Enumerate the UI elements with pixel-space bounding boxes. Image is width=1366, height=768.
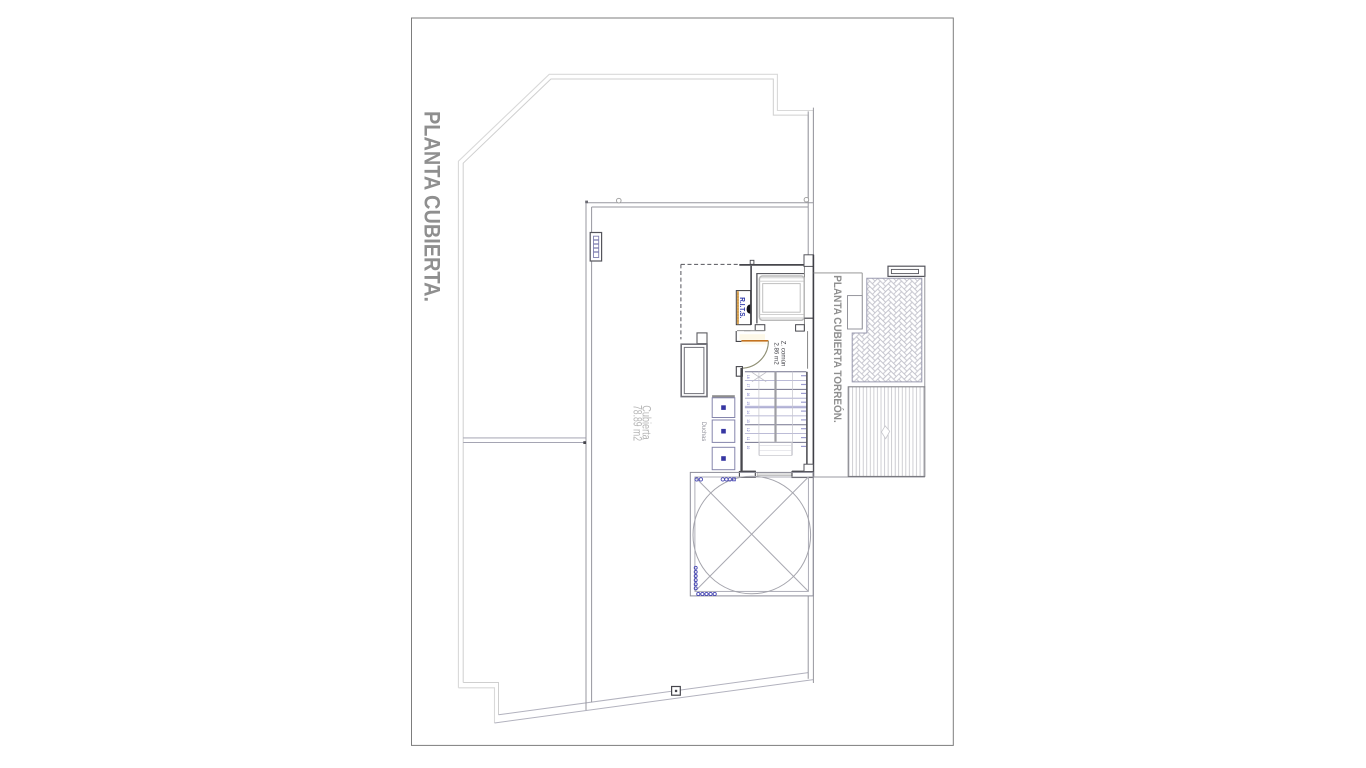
svg-text:12: 12 xyxy=(746,428,750,432)
svg-text:17: 17 xyxy=(746,384,750,388)
svg-text:16: 16 xyxy=(746,393,750,397)
svg-text:78.89 m2: 78.89 m2 xyxy=(631,405,643,441)
svg-text:PLANTA CUBIERTA TORREÓN.: PLANTA CUBIERTA TORREÓN. xyxy=(831,275,844,423)
svg-text:15: 15 xyxy=(746,401,750,405)
svg-text:10: 10 xyxy=(746,446,750,450)
svg-text:R.I.T.S.: R.I.T.S. xyxy=(738,297,745,318)
svg-text:Duchas: Duchas xyxy=(700,422,707,442)
svg-text:18: 18 xyxy=(746,375,750,379)
svg-text:Z. común: Z. común xyxy=(779,341,786,367)
svg-text:14: 14 xyxy=(746,410,750,414)
svg-text:PLANTA CUBIERTA.: PLANTA CUBIERTA. xyxy=(420,111,445,302)
svg-text:11: 11 xyxy=(746,437,750,441)
svg-text:13: 13 xyxy=(746,419,750,423)
svg-text:2.86 m2: 2.86 m2 xyxy=(772,342,779,365)
